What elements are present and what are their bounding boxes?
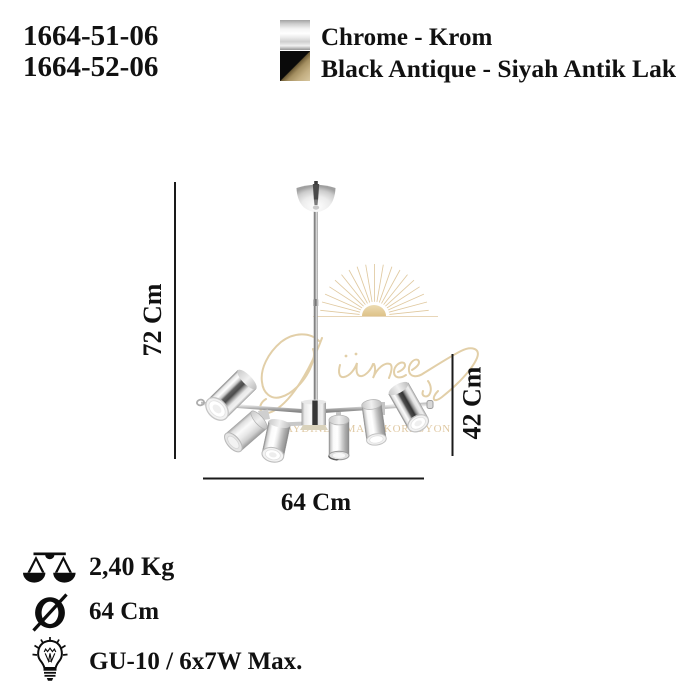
svg-text:72 Cm: 72 Cm [138, 283, 167, 356]
svg-text:64 Cm: 64 Cm [281, 489, 351, 516]
svg-text:42 Cm: 42 Cm [458, 366, 487, 439]
